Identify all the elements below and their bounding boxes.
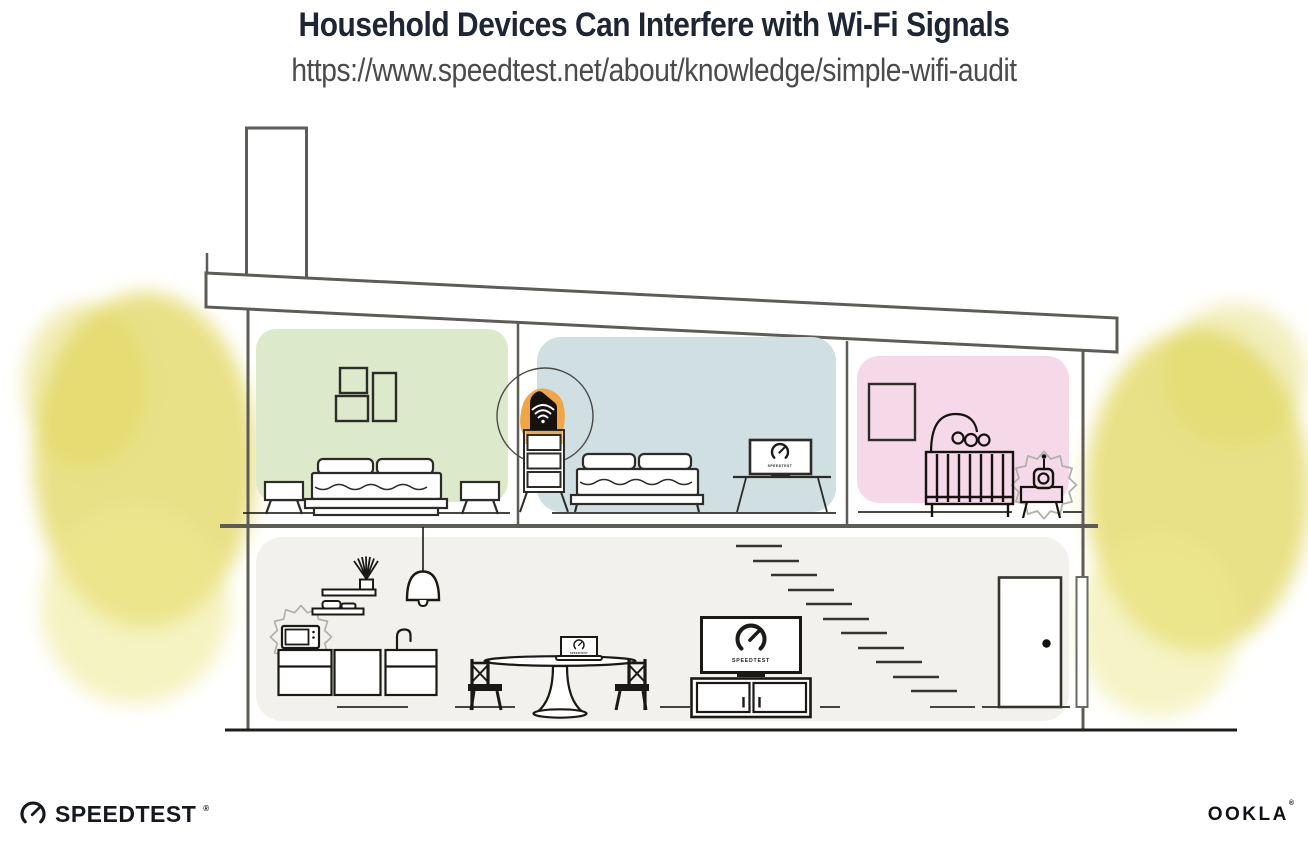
ookla-wordmark: OOKLA: [1208, 804, 1289, 825]
door-knob: [1042, 639, 1050, 647]
house-illustration: SPEEDTEST: [0, 0, 1308, 861]
downspout: [1077, 577, 1088, 707]
nightstand-left: [265, 482, 303, 514]
speedtest-wordmark: SPEEDTEST: [55, 801, 196, 828]
speedtest-registered-mark: ®: [203, 804, 209, 813]
bedroom-tv-label: SPEEDTEST: [768, 464, 793, 468]
living-tv-label: SPEEDTEST: [732, 658, 770, 664]
bed: [305, 459, 447, 515]
speedtest-logo: SPEEDTEST®: [18, 799, 209, 829]
chimney: [247, 128, 307, 284]
ookla-logo: OOKLA®: [1208, 804, 1294, 826]
laptop-label: SPEEDTEST: [570, 651, 588, 655]
nightstand-right: [461, 482, 499, 514]
ookla-registered-mark: ®: [1289, 800, 1294, 807]
speedtest-gauge-icon: [18, 799, 48, 829]
media-console: [692, 679, 811, 718]
kitchen-cabinets: [279, 650, 437, 695]
foliage-right: [1076, 303, 1308, 717]
microwave-icon: [282, 626, 319, 648]
door: [999, 578, 1061, 708]
foliage-left: [23, 292, 257, 705]
